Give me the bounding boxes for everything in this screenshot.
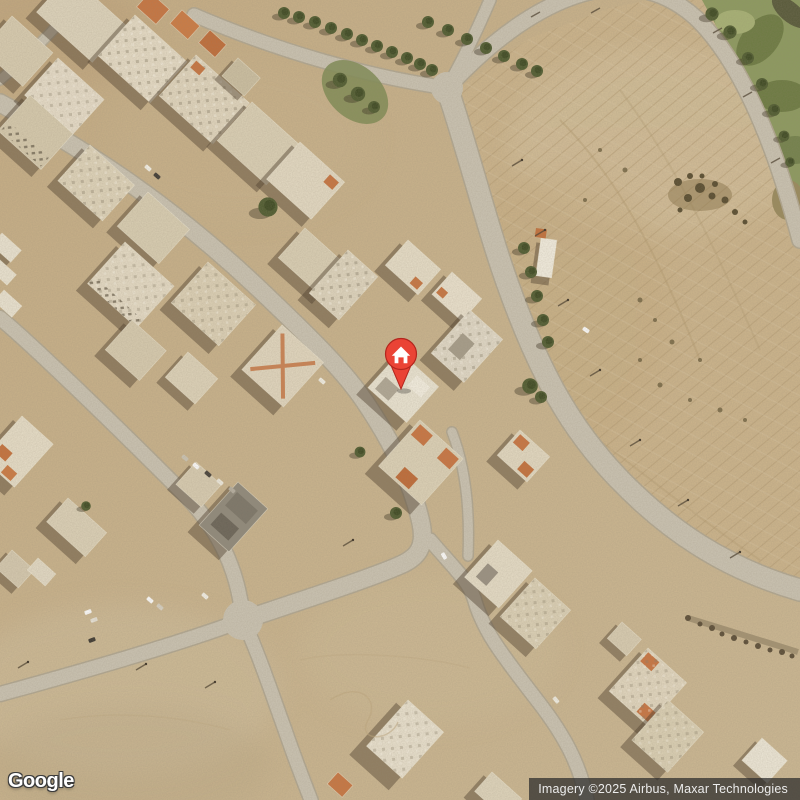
- marker-ground-shadow: [397, 388, 411, 393]
- google-logo[interactable]: Google: [8, 770, 74, 793]
- imagery-grain-texture: [0, 0, 800, 800]
- attribution-bar: Imagery ©2025 Airbus, Maxar Technologies: [529, 778, 800, 800]
- satellite-imagery[interactable]: [0, 0, 800, 800]
- map-viewport[interactable]: Google Imagery ©2025 Airbus, Maxar Techn…: [0, 0, 800, 800]
- attribution-text: Imagery ©2025 Airbus, Maxar Technologies: [538, 782, 788, 796]
